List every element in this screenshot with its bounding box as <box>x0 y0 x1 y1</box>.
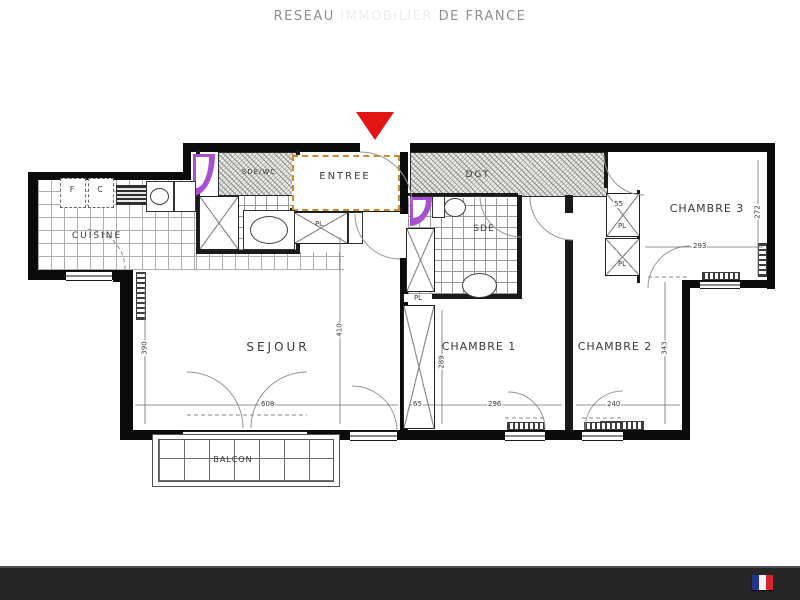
france-flag-icon <box>752 575 773 590</box>
purple-door-inner <box>413 200 426 218</box>
window <box>350 431 397 441</box>
room-label-chambre2: CHAMBRE 2 <box>564 340 666 353</box>
closet-chambre1 <box>403 305 435 429</box>
shower-tray <box>199 196 239 250</box>
window <box>582 431 623 441</box>
window <box>505 431 545 441</box>
brand-de-france: DE FRANCE <box>439 9 527 24</box>
shower-tray <box>406 228 435 292</box>
wc-bowl <box>444 198 466 217</box>
kitchen-sink-bowl <box>150 188 169 205</box>
wall-segment <box>517 195 522 299</box>
dim-chambre3-width: 293 <box>692 242 707 250</box>
wall-segment <box>120 278 133 432</box>
radiator <box>758 243 767 277</box>
room-label-cuisine: CUISINE <box>58 231 136 241</box>
wall-segment <box>767 143 775 289</box>
dgt-hatched-floor <box>410 152 608 197</box>
dim-chambre1-width: 296 <box>487 400 502 408</box>
radiator <box>702 272 740 280</box>
room-label-sejour: SEJOUR <box>236 340 320 354</box>
dim-chambre3-closet: 55 <box>613 200 624 208</box>
dim-chambre1-height: 289 <box>438 354 446 369</box>
fridge-letter: F <box>60 185 84 194</box>
purple-door-inner <box>196 157 209 188</box>
brand-immobilier: IMMOBILIER <box>340 9 433 24</box>
dim-chambre3-height: 272 <box>754 204 762 219</box>
floor-plan-page: CUISINE SEJOUR ENTREE SDE/WC DGT SDE CHA… <box>0 0 800 600</box>
purple-door-icon <box>193 154 215 196</box>
room-label-sde-wc: SDE/WC <box>228 168 290 176</box>
dim-pl-width: 65 <box>412 400 423 408</box>
closet-label: PL <box>608 222 636 230</box>
wall-segment <box>183 143 360 152</box>
radiator <box>507 422 545 430</box>
wall-segment <box>28 172 38 278</box>
dim-chambre2-height: 343 <box>661 340 669 355</box>
footer-bar <box>0 566 800 600</box>
closet-label: PL <box>608 260 636 268</box>
entrance-arrow-icon <box>356 112 394 140</box>
wall-segment <box>408 193 518 196</box>
closet-entree <box>294 212 348 244</box>
wall-segment <box>682 280 690 440</box>
wall-segment <box>196 250 300 254</box>
window <box>66 271 112 281</box>
window <box>700 281 740 289</box>
radiator <box>136 272 146 320</box>
room-label-balcon: BALCON <box>202 455 264 464</box>
washbasin-bowl <box>462 273 497 298</box>
wall-segment <box>565 195 573 213</box>
wall-segment <box>565 240 573 430</box>
dim-sejour-height-right: 410 <box>336 322 344 337</box>
radiator <box>584 422 623 430</box>
dim-sejour-height-left: 390 <box>141 340 149 355</box>
closet-chambre3-b <box>605 238 640 276</box>
hob-icon <box>116 185 148 205</box>
room-label-entree: ENTREE <box>306 171 384 182</box>
wall-segment <box>113 270 133 282</box>
dim-sejour-width: 608 <box>260 400 275 408</box>
entree-dashed-zone <box>292 155 400 211</box>
kitchen-floor-tiles-strip <box>196 252 344 270</box>
brand-reseau: RESEAU <box>274 9 335 24</box>
closet-label: PL <box>306 220 332 228</box>
flag-stripe-red <box>766 575 773 590</box>
wall-segment <box>604 152 608 188</box>
wall-segment <box>410 143 775 152</box>
room-label-dgt: DGT <box>458 170 498 180</box>
room-label-chambre3: CHAMBRE 3 <box>656 202 758 215</box>
dim-chambre2-width: 240 <box>606 400 621 408</box>
flag-stripe-white <box>759 575 766 590</box>
room-label-chambre1: CHAMBRE 1 <box>428 340 530 353</box>
room-label-sde: SDE <box>466 224 502 234</box>
flag-stripe-blue <box>752 575 759 590</box>
brand-text: RESEAU IMMOBILIER DE FRANCE <box>0 9 800 24</box>
kitchen-unit <box>174 181 196 212</box>
cooker-letter: C <box>88 185 112 194</box>
wall-segment <box>400 152 408 214</box>
washbasin-bowl <box>250 216 288 244</box>
closet-label: PL <box>404 294 432 302</box>
closet-entree-side <box>348 212 363 244</box>
